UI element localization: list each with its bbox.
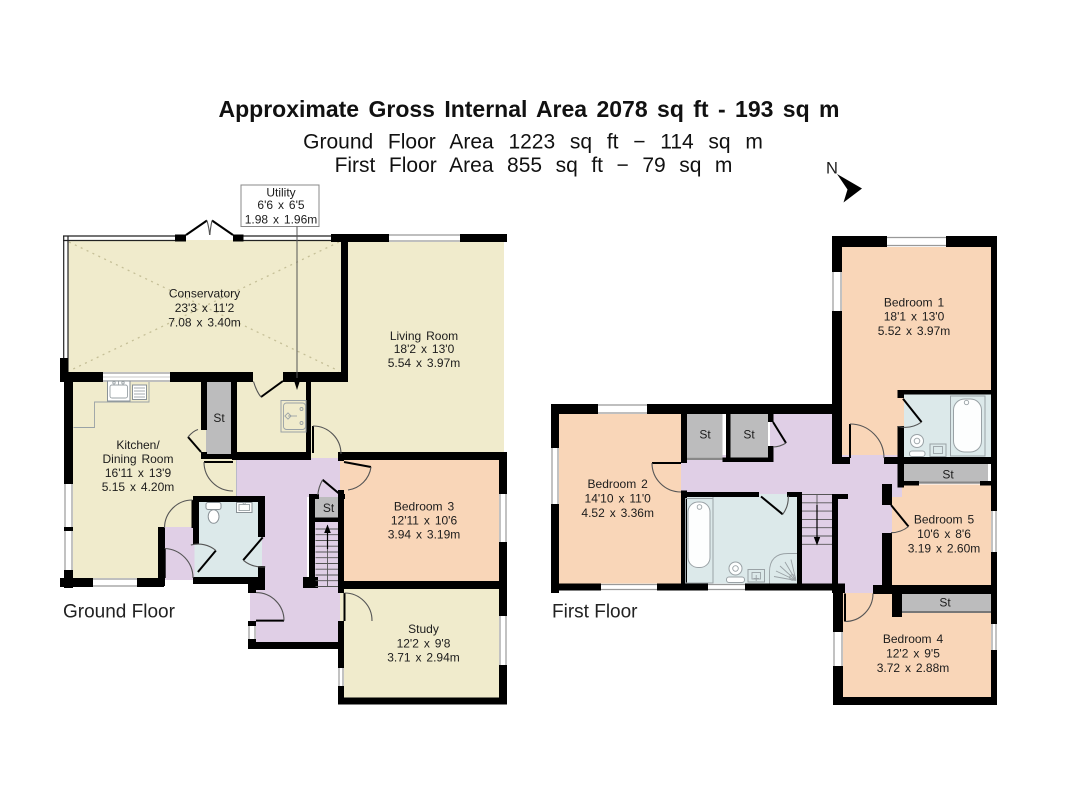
svg-text:23'3 x 11'2: 23'3 x 11'2 (175, 301, 235, 315)
svg-text:5.52 x 3.97m: 5.52 x 3.97m (878, 324, 951, 338)
svg-text:3.94 x 3.19m: 3.94 x 3.19m (388, 527, 461, 541)
svg-text:St: St (939, 596, 951, 610)
svg-text:St: St (942, 468, 954, 482)
svg-text:Living Room: Living Room (390, 329, 458, 343)
svg-text:St: St (743, 428, 755, 442)
svg-text:Conservatory: Conservatory (169, 287, 240, 301)
svg-text:Ground Floor Area 1223 sq ft −: Ground Floor Area 1223 sq ft − 114 sq m (303, 131, 763, 154)
svg-text:6'6 x 6'5: 6'6 x 6'5 (257, 198, 304, 212)
svg-text:4.52 x 3.36m: 4.52 x 3.36m (581, 506, 654, 520)
svg-text:Bedroom 5: Bedroom 5 (914, 512, 975, 526)
svg-text:Ground Floor: Ground Floor (63, 602, 176, 623)
svg-text:Bedroom 4: Bedroom 4 (883, 632, 944, 646)
svg-text:18'1 x 13'0: 18'1 x 13'0 (884, 310, 945, 324)
svg-text:Kitchen/: Kitchen/ (116, 438, 160, 452)
svg-text:18'2 x 13'0: 18'2 x 13'0 (394, 342, 455, 356)
svg-text:St: St (323, 501, 335, 515)
svg-text:3.72 x 2.88m: 3.72 x 2.88m (877, 661, 950, 675)
svg-text:7.08 x 3.40m: 7.08 x 3.40m (168, 315, 241, 329)
svg-text:Approximate Gross Internal Are: Approximate Gross Internal Area 2078 sq … (219, 96, 840, 122)
svg-text:14'10 x 11'0: 14'10 x 11'0 (585, 492, 652, 506)
svg-text:Dining Room: Dining Room (103, 452, 174, 466)
svg-text:First Floor: First Floor (552, 602, 638, 623)
svg-text:Bedroom 1: Bedroom 1 (884, 295, 945, 309)
svg-text:N: N (826, 160, 838, 178)
svg-text:St: St (213, 411, 225, 425)
svg-text:First Floor Area 855 sq ft − 7: First Floor Area 855 sq ft − 79 sq m (335, 154, 733, 177)
svg-text:5.15 x 4.20m: 5.15 x 4.20m (102, 480, 175, 494)
svg-text:3.19 x 2.60m: 3.19 x 2.60m (908, 541, 981, 555)
svg-text:12'2 x 9'5: 12'2 x 9'5 (886, 646, 940, 660)
svg-text:3.71 x 2.94m: 3.71 x 2.94m (387, 651, 460, 665)
svg-text:1.98 x 1.96m: 1.98 x 1.96m (245, 212, 318, 226)
svg-text:10'6 x 8'6: 10'6 x 8'6 (917, 527, 971, 541)
svg-text:5.54 x 3.97m: 5.54 x 3.97m (388, 356, 461, 370)
svg-text:12'11 x 10'6: 12'11 x 10'6 (391, 513, 458, 527)
svg-text:Bedroom 2: Bedroom 2 (588, 477, 649, 491)
svg-text:Bedroom 3: Bedroom 3 (394, 499, 455, 513)
svg-text:Study: Study (408, 622, 439, 636)
svg-text:16'11 x 13'9: 16'11 x 13'9 (105, 466, 172, 480)
svg-text:St: St (699, 428, 711, 442)
svg-text:12'2 x 9'8: 12'2 x 9'8 (397, 636, 451, 650)
